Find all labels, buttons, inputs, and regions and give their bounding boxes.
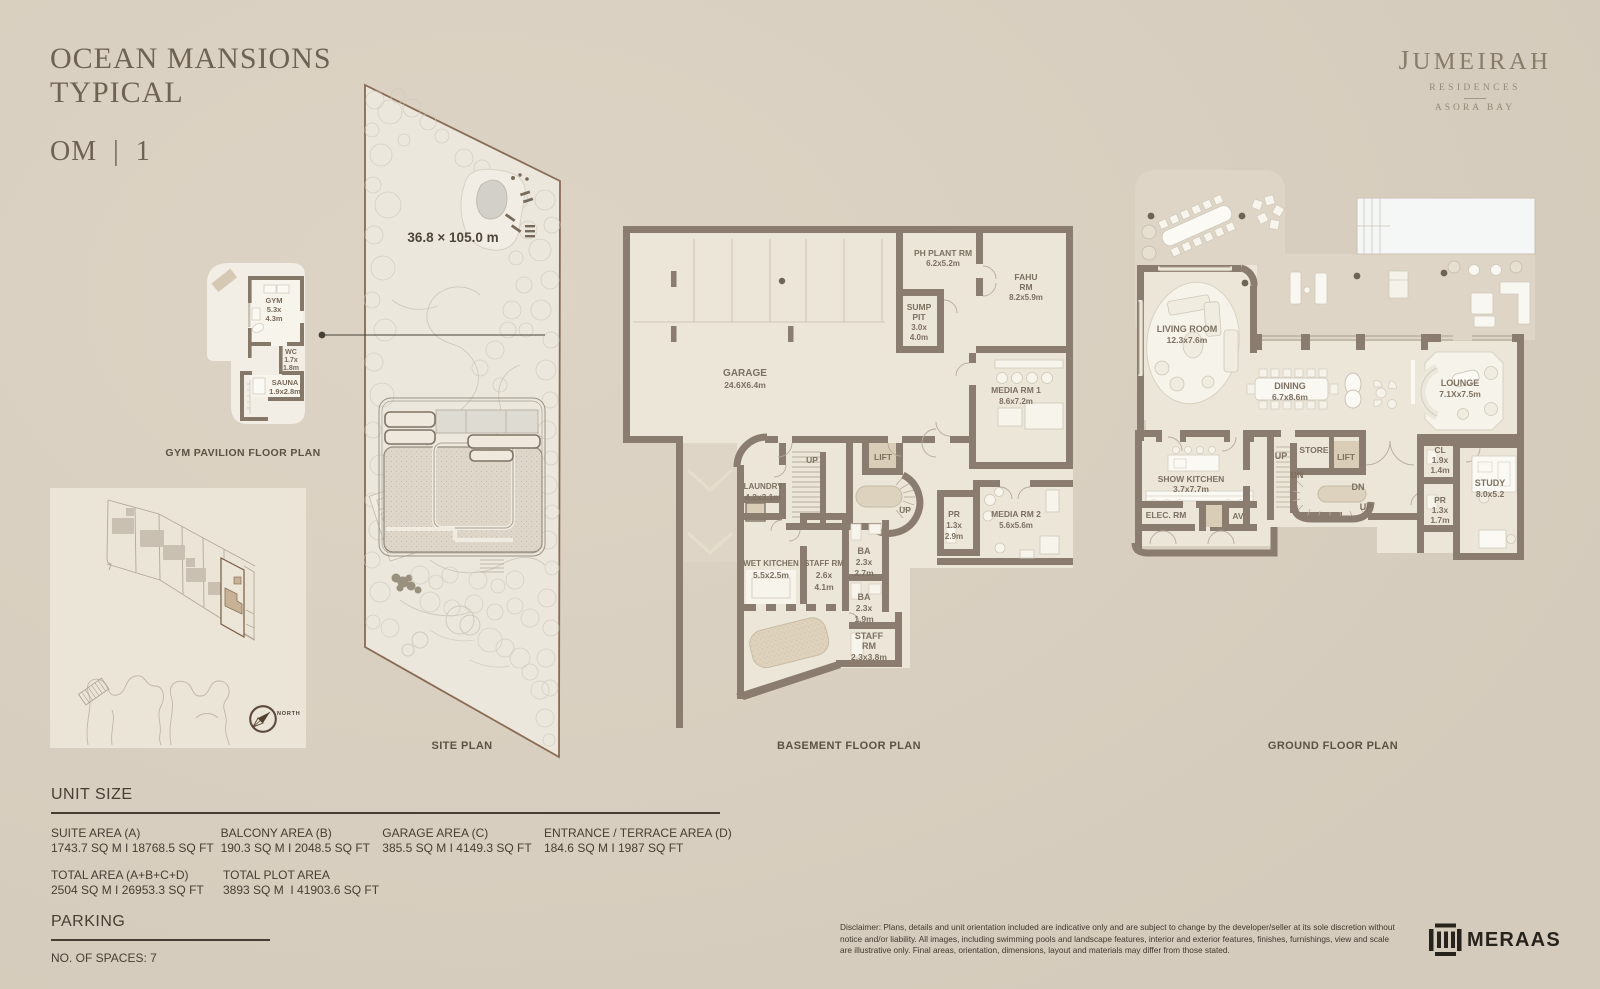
svg-text:8.0x5.2: 8.0x5.2	[1476, 489, 1505, 499]
svg-text:GYM: GYM	[265, 296, 282, 305]
svg-text:3.0x: 3.0x	[911, 323, 927, 332]
svg-text:UP: UP	[1275, 451, 1288, 461]
svg-text:BA: BA	[858, 546, 871, 556]
svg-text:2.6x: 2.6x	[816, 570, 833, 580]
svg-text:8.6x7.2m: 8.6x7.2m	[999, 397, 1033, 406]
svg-text:1.3x: 1.3x	[1432, 505, 1449, 515]
svg-text:DN: DN	[1352, 482, 1365, 492]
svg-text:PIT: PIT	[912, 312, 926, 322]
svg-text:8.2x5.9m: 8.2x5.9m	[1009, 293, 1043, 302]
svg-text:5.3x: 5.3x	[267, 305, 282, 314]
svg-text:PR: PR	[1434, 495, 1446, 505]
svg-text:1.7m: 1.7m	[1430, 515, 1450, 525]
svg-text:BA: BA	[858, 592, 871, 602]
svg-text:5.6x5.6m: 5.6x5.6m	[999, 521, 1033, 530]
svg-text:SAUNA: SAUNA	[272, 378, 299, 387]
svg-text:BASEMENT FLOOR PLAN: BASEMENT FLOOR PLAN	[777, 740, 921, 752]
svg-text:RM: RM	[1019, 282, 1032, 292]
svg-text:CL: CL	[1434, 445, 1445, 455]
svg-text:1.3x: 1.3x	[946, 521, 962, 530]
svg-text:1.9x: 1.9x	[1432, 455, 1449, 465]
svg-text:RM: RM	[862, 641, 876, 651]
svg-text:5.5x2.5m: 5.5x2.5m	[753, 570, 789, 580]
svg-text:2.3x3.8m: 2.3x3.8m	[851, 652, 887, 662]
svg-text:LOUNGE: LOUNGE	[1441, 378, 1480, 388]
svg-text:NORTH: NORTH	[277, 711, 301, 717]
svg-text:MEDIA RM 1: MEDIA RM 1	[991, 385, 1041, 395]
svg-text:UP: UP	[899, 505, 911, 515]
svg-text:6.2x5.2m: 6.2x5.2m	[926, 259, 960, 268]
svg-text:UP: UP	[806, 455, 818, 465]
svg-text:36.8 × 105.0 m: 36.8 × 105.0 m	[407, 230, 498, 245]
svg-text:ELEC. RM: ELEC. RM	[1146, 510, 1187, 520]
svg-text:LIFT: LIFT	[874, 452, 893, 462]
svg-text:UP: UP	[1360, 502, 1373, 512]
svg-text:4.2x3.1m: 4.2x3.1m	[745, 492, 781, 502]
svg-text:STAFF: STAFF	[855, 631, 884, 641]
svg-text:3.7x7.7m: 3.7x7.7m	[1173, 484, 1209, 494]
svg-text:1.9x2.8m: 1.9x2.8m	[269, 387, 301, 396]
svg-text:7.1Xx7.5m: 7.1Xx7.5m	[1439, 389, 1481, 399]
svg-text:AV: AV	[1232, 511, 1244, 521]
svg-text:LIFT: LIFT	[1337, 452, 1356, 462]
svg-text:SHOW KITCHEN: SHOW KITCHEN	[1158, 474, 1225, 484]
svg-text:4.3m: 4.3m	[265, 314, 282, 323]
svg-text:1.8m: 1.8m	[283, 365, 299, 372]
svg-text:WET KITCHEN: WET KITCHEN	[743, 559, 799, 568]
svg-text:MEDIA RM 2: MEDIA RM 2	[991, 509, 1041, 519]
svg-text:DN: DN	[1291, 470, 1304, 480]
svg-text:2.3x: 2.3x	[856, 603, 873, 613]
svg-text:LIVING ROOM: LIVING ROOM	[1157, 324, 1218, 334]
svg-text:PH PLANT RM: PH PLANT RM	[914, 248, 972, 258]
svg-text:12.3x7.6m: 12.3x7.6m	[1167, 335, 1208, 345]
svg-text:4.0m: 4.0m	[910, 333, 928, 342]
svg-text:GYM PAVILION FLOOR PLAN: GYM PAVILION FLOOR PLAN	[165, 447, 320, 459]
svg-text:GROUND FLOOR PLAN: GROUND FLOOR PLAN	[1268, 740, 1398, 752]
svg-text:2.9m: 2.9m	[945, 532, 963, 541]
svg-text:2.3x: 2.3x	[856, 557, 873, 567]
svg-text:FAHU: FAHU	[1014, 272, 1037, 282]
svg-text:MERAAS: MERAAS	[1467, 929, 1561, 951]
svg-text:PR: PR	[948, 509, 960, 519]
svg-text:1.4m: 1.4m	[1430, 465, 1450, 475]
svg-text:1.7x: 1.7x	[284, 357, 298, 364]
svg-text:GARAGE: GARAGE	[723, 368, 767, 379]
svg-text:WC: WC	[285, 349, 297, 356]
svg-text:6.7x8.6m: 6.7x8.6m	[1272, 392, 1308, 402]
svg-text:STUDY: STUDY	[1475, 478, 1506, 488]
svg-text:SITE PLAN: SITE PLAN	[431, 740, 492, 752]
svg-text:24.6X6.4m: 24.6X6.4m	[724, 380, 766, 390]
svg-text:2.7m: 2.7m	[854, 568, 874, 578]
svg-text:DINING: DINING	[1274, 381, 1306, 391]
svg-text:1.9m: 1.9m	[854, 614, 874, 624]
svg-text:STAFF RM: STAFF RM	[804, 559, 844, 568]
svg-text:STORE: STORE	[1299, 445, 1328, 455]
svg-text:4.1m: 4.1m	[814, 582, 834, 592]
svg-text:SUMP: SUMP	[907, 302, 932, 312]
svg-text:LAUNDRY: LAUNDRY	[744, 482, 783, 491]
